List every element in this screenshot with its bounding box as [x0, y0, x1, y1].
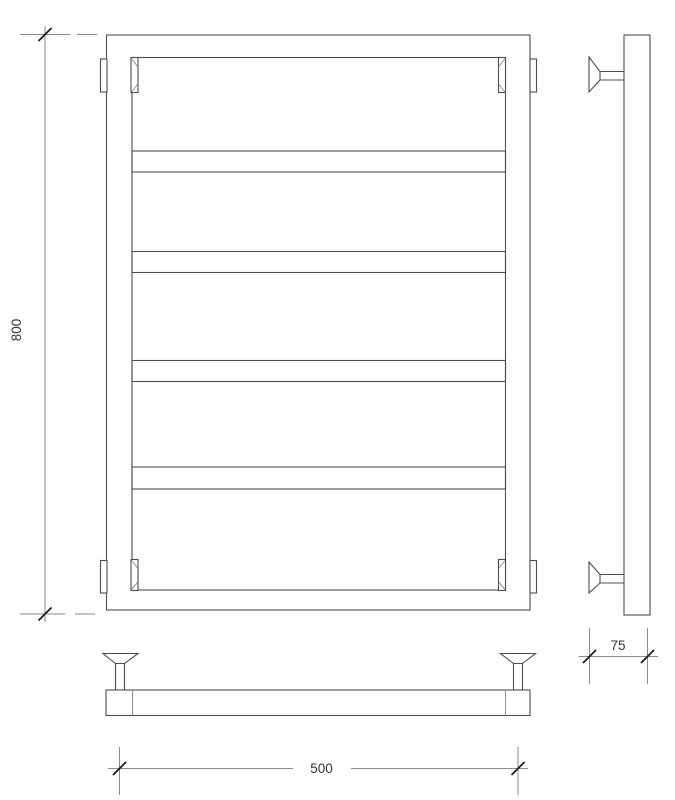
bracket-stub-outer-top-left [101, 59, 108, 92]
drawing-canvas: 800 500 75 [0, 0, 675, 800]
bracket-stub-outer-bottom-right [530, 561, 537, 594]
dimension-width-label: 500 [310, 761, 333, 776]
side-wall-bracket-bottom [589, 562, 624, 593]
bracket-flange-top [589, 57, 600, 92]
bracket-stub-outer-bottom-left [101, 561, 108, 594]
dimension-depth: 75 [579, 628, 659, 684]
bracket-stub-inner-bottom-left [131, 560, 138, 591]
dimension-height-label: 800 [9, 319, 24, 342]
bracket-flange-left [103, 654, 138, 664]
front-view [101, 35, 537, 610]
bracket-stub-inner-top-left [131, 58, 138, 93]
towel-bar-3 [132, 361, 506, 382]
side-view [589, 35, 650, 615]
front-outer-frame [107, 35, 531, 610]
bracket-stub-inner-bottom-right [499, 560, 506, 591]
front-inner-frame [132, 58, 506, 591]
bottom-wall-bracket-right [501, 654, 536, 691]
bottom-rail-profile [106, 690, 530, 716]
dimension-height: 800 [9, 26, 97, 622]
towel-rail-technical-drawing: 800 500 75 [0, 0, 675, 800]
side-wall-bracket-top [589, 57, 624, 92]
bottom-wall-bracket-left [103, 654, 138, 691]
dimension-depth-label: 75 [610, 638, 625, 653]
bracket-flange-bottom [589, 562, 600, 593]
bottom-view [103, 654, 536, 716]
side-profile [624, 35, 650, 615]
towel-bar-1 [132, 151, 506, 172]
towel-bar-2 [132, 252, 506, 273]
bracket-stub-outer-top-right [530, 59, 537, 92]
bracket-stub-inner-top-right [499, 58, 506, 93]
towel-bar-4 [132, 467, 506, 489]
dimension-width: 500 [108, 747, 528, 795]
bracket-flange-right [501, 654, 536, 664]
